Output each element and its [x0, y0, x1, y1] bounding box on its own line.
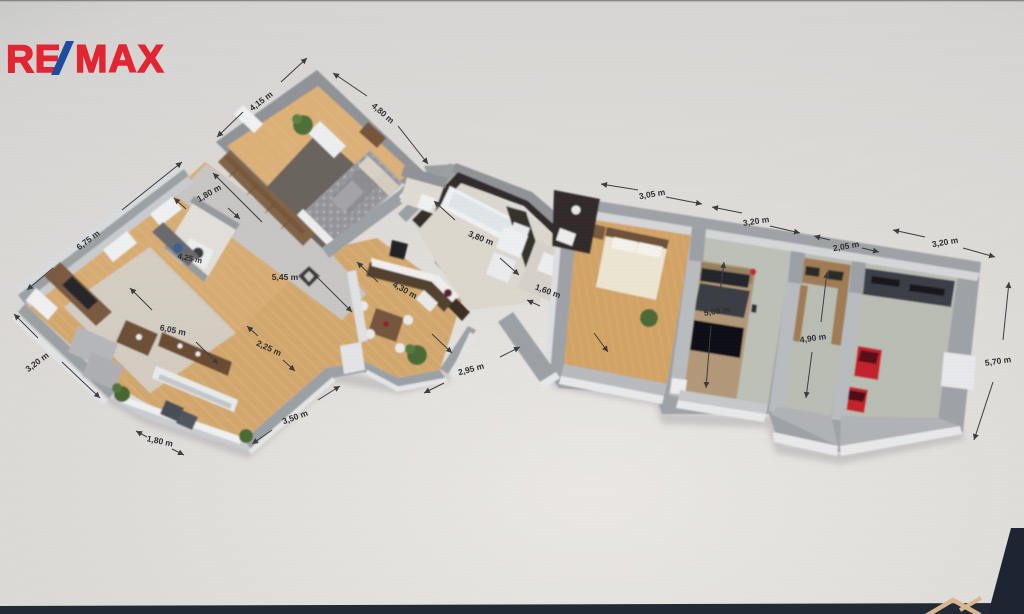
svg-text:MAX: MAX [75, 38, 165, 81]
